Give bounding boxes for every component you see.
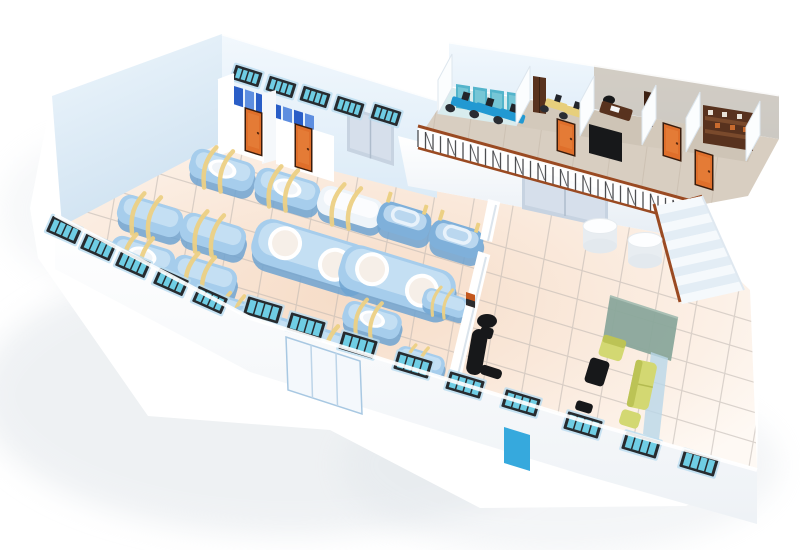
- illustration-stage: [0, 0, 800, 550]
- orange-door: [663, 122, 682, 162]
- round-table: [628, 233, 662, 269]
- orange-door: [695, 149, 714, 191]
- washroom-mid-wall: [262, 90, 276, 164]
- orange-door: [557, 118, 576, 157]
- orange-door: [245, 107, 263, 157]
- orange-door: [295, 123, 313, 173]
- facility-floorplan-illustration: [0, 0, 800, 550]
- round-table: [583, 219, 617, 254]
